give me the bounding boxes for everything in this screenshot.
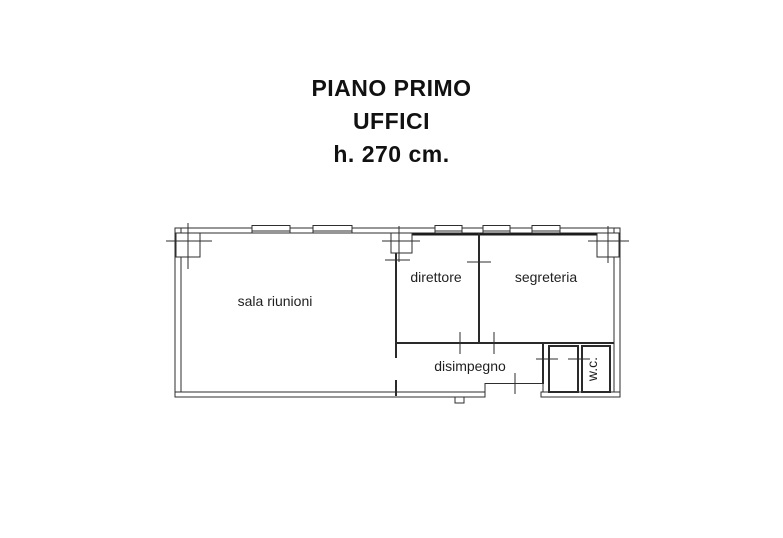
room-label-wc: w.c. xyxy=(584,357,600,382)
wall-entrance-recess xyxy=(485,384,543,398)
service-rooms xyxy=(549,346,610,392)
room-label-sala-riunioni: sala riunioni xyxy=(238,293,313,309)
floor-plan: sala riunioni direttore segreteria disim… xyxy=(0,0,783,538)
room-label-segreteria: segreteria xyxy=(515,269,577,285)
threshold-notch xyxy=(455,397,464,403)
window-symbol xyxy=(252,226,290,234)
anti-wc-room xyxy=(549,346,578,392)
room-label-disimpegno: disimpegno xyxy=(434,358,506,374)
wall-bottom-left xyxy=(175,392,485,397)
room-label-direttore: direttore xyxy=(410,269,462,285)
window-symbol xyxy=(313,226,352,234)
window-symbol xyxy=(532,226,560,234)
floor-plan-page: PIANO PRIMO UFFICI h. 270 cm. xyxy=(0,0,783,538)
window-symbol xyxy=(483,226,510,234)
window-symbol xyxy=(435,226,462,234)
room-labels: sala riunioni direttore segreteria disim… xyxy=(238,269,600,382)
